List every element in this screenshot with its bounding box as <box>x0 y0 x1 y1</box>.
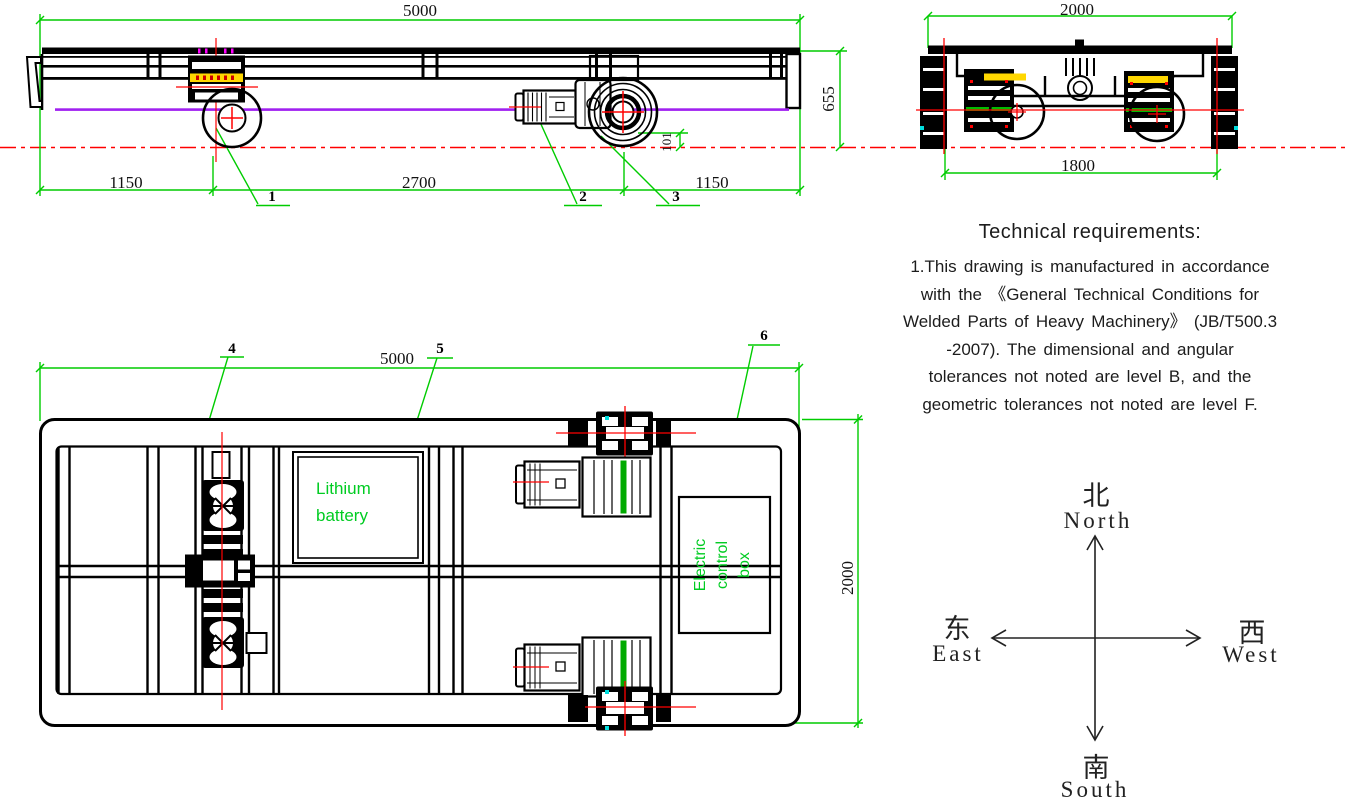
dim-side-left-overhang: 1150 <box>96 173 156 193</box>
compass-east-en: East <box>918 641 998 667</box>
dim-side-overall-length: 5000 <box>390 1 450 21</box>
control-label-line3: box <box>734 505 756 625</box>
end-view-motor-units <box>964 69 1174 132</box>
callout-5: 5 <box>430 341 450 358</box>
dim-end-overall-width: 2000 <box>1047 0 1107 20</box>
dim-side-height: 655 <box>819 69 839 129</box>
dim-side-wheelbase: 2700 <box>389 173 449 193</box>
callout-2: 2 <box>573 189 593 206</box>
control-label-line2: control <box>712 505 734 625</box>
lithium-battery-label-line1: Lithium <box>316 475 371 502</box>
cad-drawing-page: 5000 1150 2700 1150 655 101 1 2 3 2000 1… <box>0 0 1345 801</box>
tech-req-line-2: with the 《General Technical Conditions f… <box>845 281 1335 309</box>
lithium-battery-label-line2: battery <box>316 502 371 529</box>
dim-end-rail-gauge: 1800 <box>1048 156 1108 176</box>
dim-plan-length: 5000 <box>367 349 427 369</box>
technical-requirements: Technical requirements: 1.This drawing i… <box>845 221 1335 418</box>
rail-surface-line <box>55 108 789 111</box>
tech-req-line-6: geometric tolerances not noted are level… <box>845 391 1335 419</box>
callout-6: 6 <box>754 328 774 345</box>
compass-arrows <box>992 536 1200 740</box>
tech-req-line-4: -2007). The dimensional and angular <box>845 336 1335 364</box>
compass-north-en: North <box>1058 508 1138 534</box>
compass-south-en: South <box>1055 777 1135 801</box>
dim-plan-width: 2000 <box>838 548 858 608</box>
tech-req-line-1: 1.This drawing is manufactured in accord… <box>845 253 1335 281</box>
end-view-drawing <box>916 12 1244 180</box>
technical-requirements-title: Technical requirements: <box>845 221 1335 244</box>
electric-control-box-label: Electric control box <box>690 505 756 625</box>
callout-4: 4 <box>222 341 242 358</box>
tech-req-line-3: Welded Parts of Heavy Machinery》 (JB/T50… <box>845 308 1335 336</box>
side-view-frame <box>27 48 800 111</box>
compass-west-en: West <box>1211 642 1291 668</box>
control-label-line1: Electric <box>690 505 712 625</box>
callout-3: 3 <box>666 189 686 206</box>
dim-flange-height: 101 <box>659 122 675 162</box>
callout-1: 1 <box>262 189 282 206</box>
tech-req-line-5: tolerances not noted are level B, and th… <box>845 363 1335 391</box>
dim-side-right-overhang: 1150 <box>682 173 742 193</box>
lithium-battery-label: Lithium battery <box>316 475 371 529</box>
side-view-drive-unit <box>509 56 657 146</box>
